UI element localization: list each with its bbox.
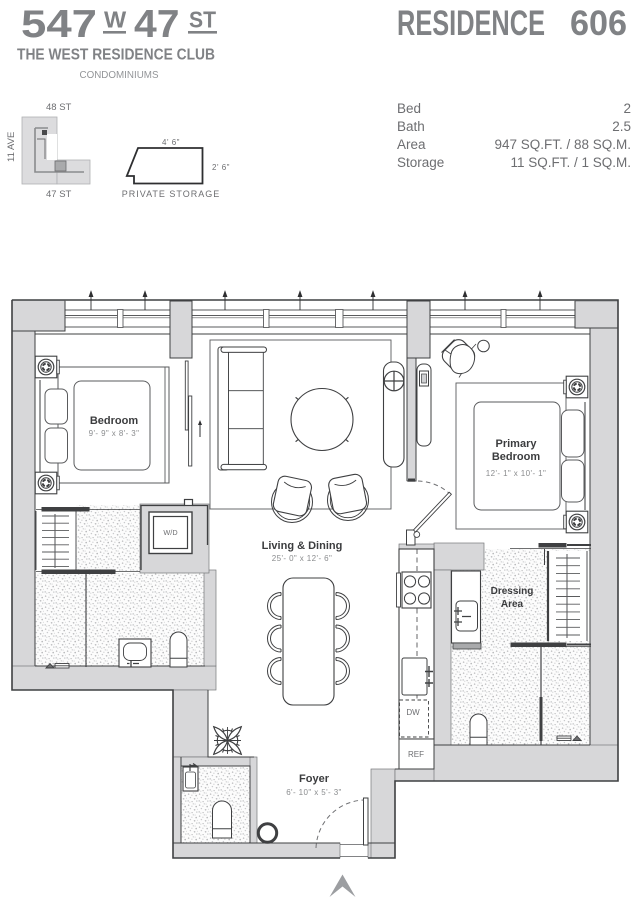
- svg-text:Area: Area: [397, 137, 426, 152]
- svg-text:947 SQ.FT. / 88 SQ.M.: 947 SQ.FT. / 88 SQ.M.: [494, 137, 631, 152]
- svg-text:ST: ST: [189, 7, 217, 33]
- svg-text:11 AVE: 11 AVE: [6, 132, 17, 162]
- svg-text:Dressing: Dressing: [491, 586, 534, 597]
- svg-text:W: W: [104, 7, 127, 33]
- svg-text:25'- 0" x 12'- 6": 25'- 0" x 12'- 6": [272, 554, 332, 563]
- svg-text:606: 606: [570, 4, 627, 43]
- svg-text:THE WEST RESIDENCE CLUB: THE WEST RESIDENCE CLUB: [17, 47, 215, 64]
- svg-text:REF: REF: [408, 750, 424, 759]
- svg-text:48 ST: 48 ST: [46, 102, 72, 113]
- svg-text:2.5: 2.5: [612, 119, 631, 134]
- svg-text:Foyer: Foyer: [299, 773, 330, 785]
- svg-text:Living & Dining: Living & Dining: [262, 540, 343, 552]
- svg-text:Area: Area: [501, 599, 524, 610]
- svg-text:4' 6": 4' 6": [162, 138, 180, 147]
- svg-text:Bedroom: Bedroom: [90, 415, 139, 427]
- svg-text:9'- 9" x 8'- 3": 9'- 9" x 8'- 3": [89, 429, 140, 438]
- svg-text:PRIVATE STORAGE: PRIVATE STORAGE: [122, 189, 221, 199]
- svg-text:47: 47: [134, 3, 180, 46]
- svg-text:Storage: Storage: [397, 155, 444, 170]
- svg-text:Bed: Bed: [397, 101, 421, 116]
- svg-text:6'- 10" x 5'- 3": 6'- 10" x 5'- 3": [286, 788, 342, 797]
- svg-text:RESIDENCE: RESIDENCE: [397, 4, 545, 43]
- svg-text:47 ST: 47 ST: [46, 189, 72, 200]
- svg-text:W/D: W/D: [163, 528, 177, 537]
- svg-text:547: 547: [21, 3, 97, 46]
- svg-text:2' 6": 2' 6": [212, 163, 230, 172]
- svg-text:12'- 1" x 10'- 1": 12'- 1" x 10'- 1": [486, 469, 546, 478]
- svg-text:CONDOMINIUMS: CONDOMINIUMS: [80, 69, 159, 81]
- svg-text:2: 2: [623, 101, 631, 116]
- svg-text:Bath: Bath: [397, 119, 425, 134]
- svg-text:Primary: Primary: [496, 438, 538, 450]
- svg-text:DW: DW: [406, 708, 420, 717]
- svg-text:Bedroom: Bedroom: [492, 451, 541, 463]
- svg-text:11 SQ.FT. / 1 SQ.M.: 11 SQ.FT. / 1 SQ.M.: [510, 155, 631, 170]
